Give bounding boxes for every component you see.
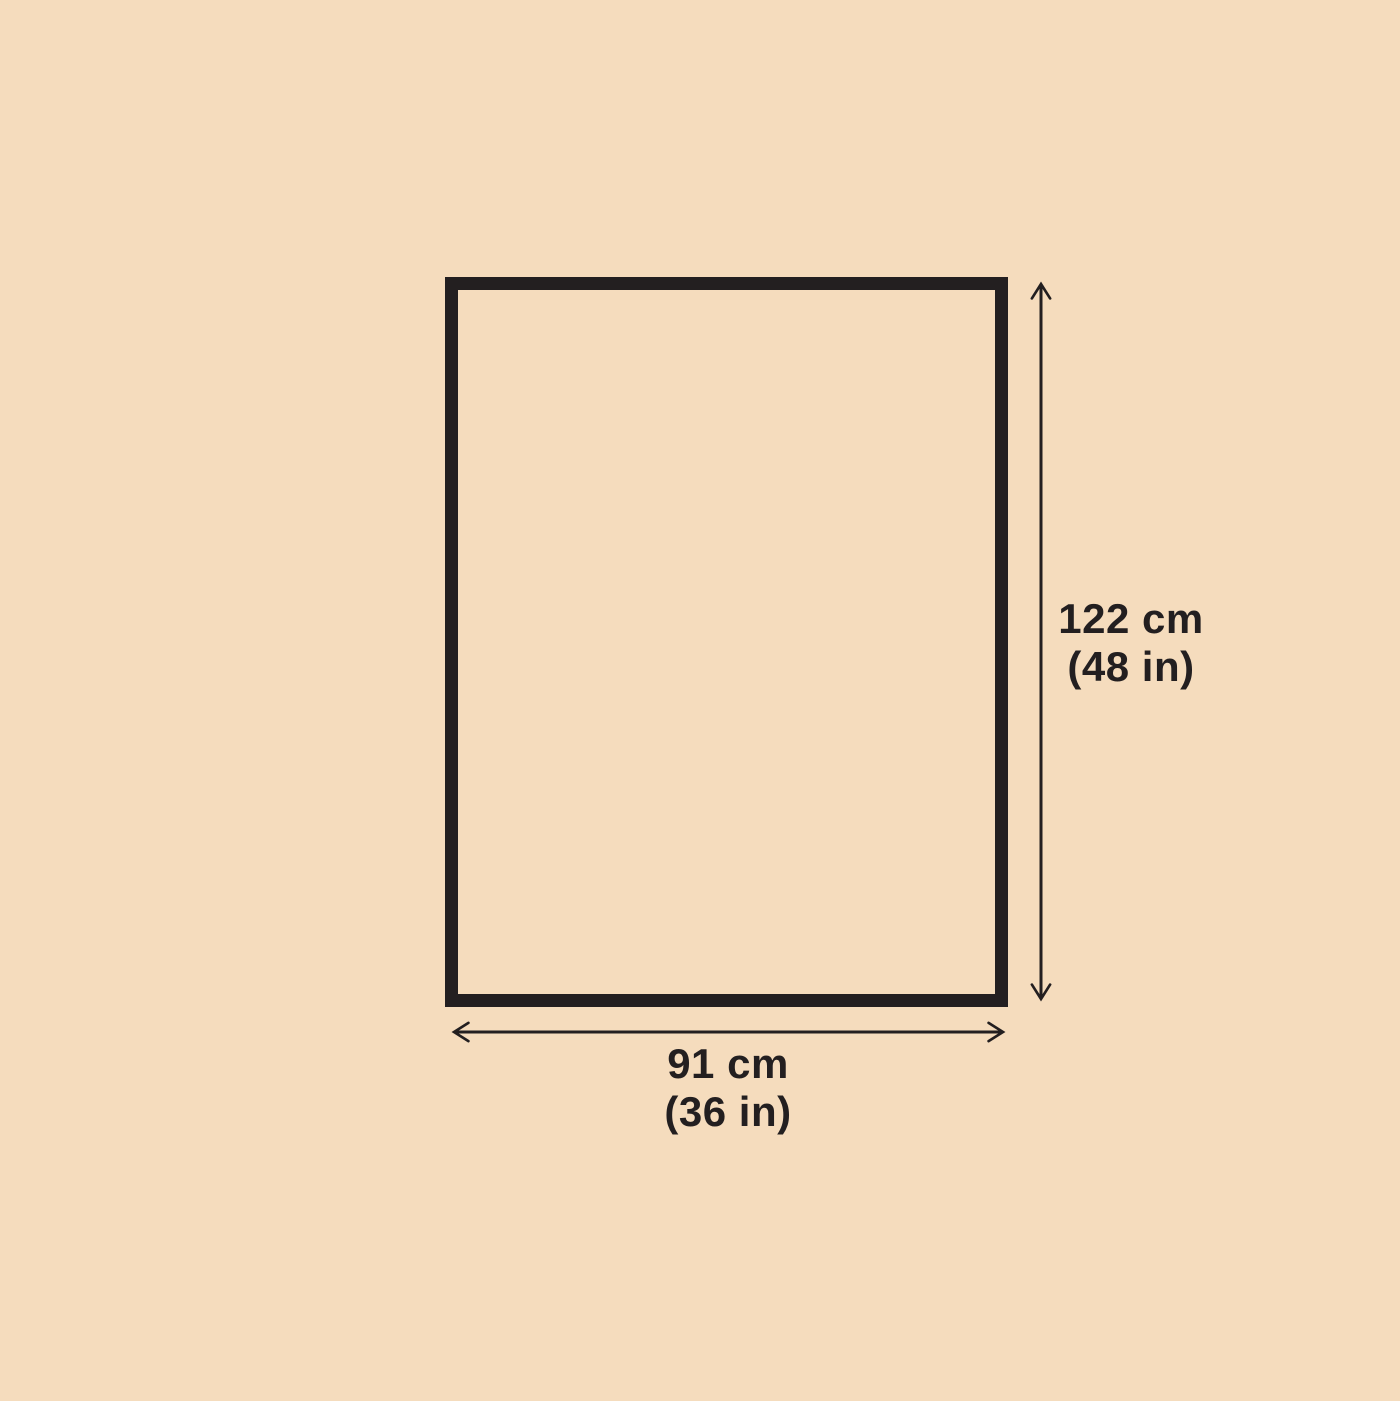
height-label-imperial: (48 in) (1067, 643, 1194, 690)
height-label-metric: 122 cm (1058, 595, 1203, 642)
diagram-canvas: 122 cm (48 in) 91 cm (36 in) (0, 0, 1400, 1401)
background (0, 0, 1400, 1401)
dimension-diagram: 122 cm (48 in) 91 cm (36 in) (0, 0, 1400, 1401)
width-label-metric: 91 cm (667, 1040, 789, 1087)
width-label-imperial: (36 in) (664, 1088, 791, 1135)
